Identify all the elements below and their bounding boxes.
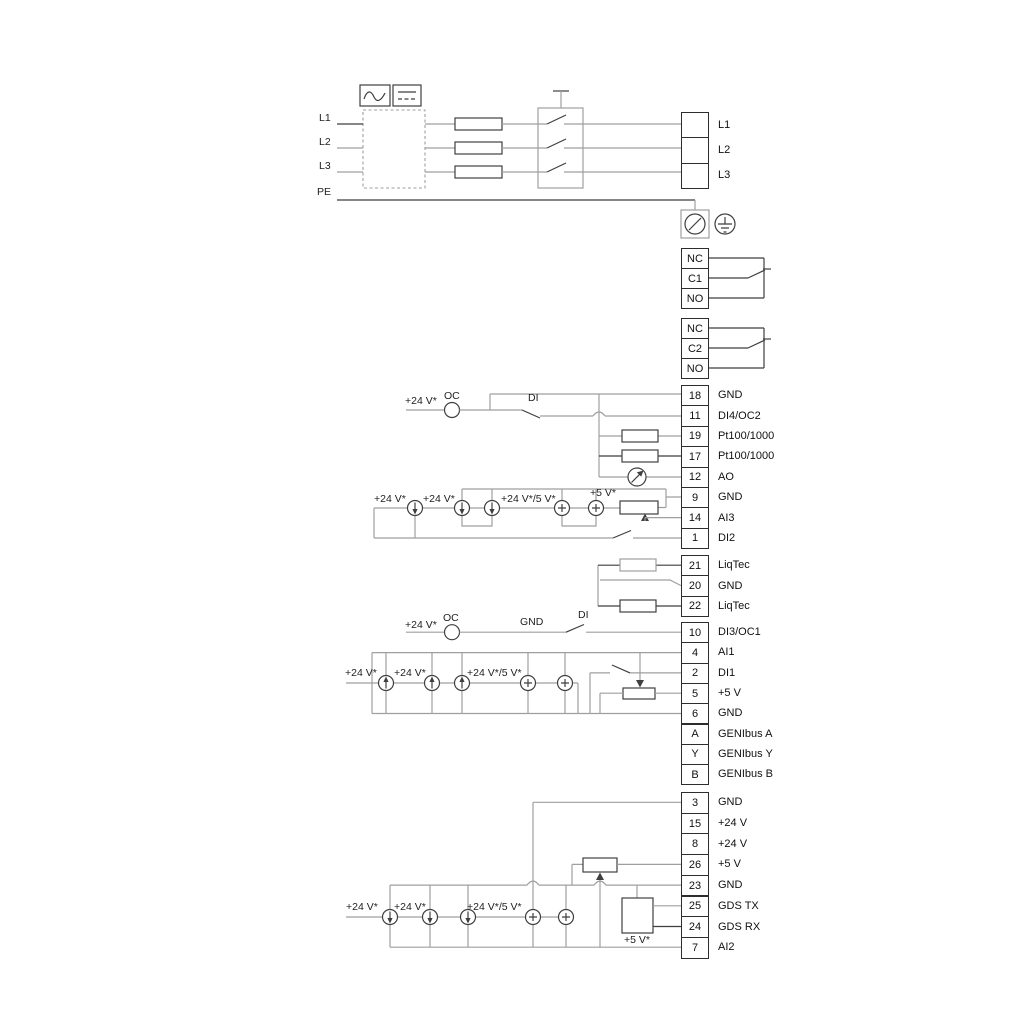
terminal-number: C2	[681, 338, 709, 359]
terminal-number: 8	[681, 833, 709, 855]
di-switch-icon	[612, 665, 630, 673]
wiring-diagram: L1L2L3 NCC1NO NCC2NO 18GND11DI4/OC219Pt1…	[0, 0, 1024, 1024]
terminal-label: +24 V	[718, 817, 747, 829]
terminal-number: 23	[681, 875, 709, 897]
meter-icon	[628, 468, 646, 486]
terminal-row: 26+5 V	[681, 854, 709, 875]
di-switch-icon	[522, 410, 540, 418]
terminal-label: LiqTec	[718, 600, 750, 612]
terminal-number: 17	[681, 446, 709, 467]
terminal-number	[681, 163, 709, 189]
main-switch	[538, 91, 583, 188]
terminal-row: YGENIbus Y	[681, 744, 709, 764]
wire-label: +24 V*	[394, 667, 426, 679]
pt100-resistors	[599, 430, 681, 462]
voltage-source-icon	[555, 501, 570, 516]
terminal-label: GND	[718, 491, 742, 503]
wire-label: +24 V*	[405, 619, 437, 631]
terminal-row: L2	[681, 137, 709, 162]
terminal-row: 4AI1	[681, 642, 709, 662]
wire-label: +24 V*	[345, 667, 377, 679]
terminal-number: A	[681, 724, 709, 745]
relay1-contact-icon	[748, 270, 765, 278]
terminal-label: AO	[718, 471, 734, 483]
terminal-label: GENIbus B	[718, 768, 773, 780]
terminal-number: 20	[681, 575, 709, 596]
relay2-wiring	[709, 328, 771, 368]
wire-label: DI	[578, 609, 589, 621]
terminal-number: 6	[681, 703, 709, 724]
terminal-number: 9	[681, 487, 709, 508]
terminal-label: DI4/OC2	[718, 410, 761, 422]
liqtec-wiring	[598, 559, 681, 612]
terminal-label: AI1	[718, 646, 735, 658]
terminal-row: C1	[681, 268, 709, 288]
terminal-row: NO	[681, 358, 709, 378]
terminal-number: 26	[681, 854, 709, 876]
terminal-row: 20GND	[681, 575, 709, 595]
terminal-row: 9GND	[681, 487, 709, 507]
terminal-row: 24GDS RX	[681, 916, 709, 937]
wire-label: +24 V*	[394, 901, 426, 913]
terminal-number: 2	[681, 663, 709, 684]
potentiometer-icon	[623, 688, 655, 699]
terminal-label: Pt100/1000	[718, 450, 774, 462]
di-switch-icon	[566, 625, 584, 633]
terminal-row: 18GND	[681, 385, 709, 405]
terminal-label: +5 V	[718, 858, 741, 870]
terminal-row: 12AO	[681, 467, 709, 487]
voltage-source-icon	[526, 910, 541, 925]
terminal-row: 14AI3	[681, 507, 709, 527]
terminal-row: 6GND	[681, 703, 709, 723]
terminal-label: GND	[718, 580, 742, 592]
terminal-row: 23GND	[681, 875, 709, 896]
wire-label: +24 V*/5 V*	[501, 493, 556, 505]
current-source-icon	[485, 501, 500, 516]
terminal-number: NO	[681, 288, 709, 309]
terminal-number: 4	[681, 642, 709, 663]
terminal-row: 11DI4/OC2	[681, 405, 709, 425]
di3-oc1-wiring	[406, 625, 681, 640]
terminal-row: NC	[681, 318, 709, 338]
terminal-label: L1	[718, 119, 730, 131]
wire-label: +5 V*	[624, 934, 650, 946]
wire-label: +24 V*	[374, 493, 406, 505]
terminal-label: GND	[718, 796, 742, 808]
terminal-label: AI2	[718, 941, 735, 953]
terminal-row: 2DI1	[681, 663, 709, 683]
wire-label: DI	[528, 392, 539, 404]
terminal-row: 25GDS TX	[681, 896, 709, 917]
ao-wiring	[599, 468, 681, 486]
open-collector-icon	[445, 625, 460, 640]
terminal-row: 21LiqTec	[681, 555, 709, 575]
converter-icons	[360, 85, 421, 106]
terminal-label: GENIbus Y	[718, 748, 773, 760]
terminal-row: NC	[681, 248, 709, 268]
current-source-icon	[455, 501, 470, 516]
terminal-number: 25	[681, 896, 709, 918]
mains-wiring	[337, 118, 538, 178]
terminal-row: AGENIbus A	[681, 724, 709, 744]
terminal-row: L1	[681, 112, 709, 137]
terminal-number: 12	[681, 467, 709, 488]
terminal-label: GDS TX	[718, 900, 759, 912]
terminal-label: GND	[718, 879, 742, 891]
terminal-label: +24 V	[718, 838, 747, 850]
voltage-source-icon	[558, 676, 573, 691]
potentiometer-wiper-icon	[636, 680, 644, 688]
resistor-icon	[622, 450, 658, 462]
wire-label: OC	[443, 612, 459, 624]
relay1-wiring	[709, 258, 771, 298]
wire-label: +24 V*	[423, 493, 455, 505]
fuse-icon	[455, 118, 502, 130]
potentiometer-wiper-icon	[596, 873, 604, 881]
wire-label: L2	[319, 136, 331, 148]
gds-sensor-box	[622, 885, 681, 933]
terminal-label: DI3/OC1	[718, 626, 761, 638]
terminal-number: 22	[681, 596, 709, 617]
di-switch-icon	[613, 531, 631, 539]
terminal-row: 8+24 V	[681, 833, 709, 854]
voltage-source-icon	[521, 676, 536, 691]
terminal-number: 5	[681, 683, 709, 704]
wire-label: +24 V*	[346, 901, 378, 913]
terminal-number: B	[681, 764, 709, 785]
ground-screw-icon	[681, 210, 709, 238]
mains-output-wires	[583, 124, 681, 172]
emc-filter-box	[363, 110, 425, 188]
open-collector-icon	[445, 403, 460, 418]
terminal-number: 14	[681, 507, 709, 528]
wire-label: OC	[444, 390, 460, 402]
terminal-row: BGENIbus B	[681, 764, 709, 784]
terminal-number: C1	[681, 268, 709, 289]
terminal-row: 1DI2	[681, 528, 709, 548]
current-source-icon	[379, 676, 394, 691]
wire-label: GND	[520, 616, 543, 628]
terminal-label: GND	[718, 389, 742, 401]
terminal-number: NC	[681, 248, 709, 269]
terminal-number: 24	[681, 916, 709, 938]
resistor-icon	[622, 430, 658, 442]
wire-label: +24 V*/5 V*	[467, 901, 522, 913]
terminal-row: 3GND	[681, 792, 709, 813]
current-source-icon	[425, 676, 440, 691]
potentiometer-icon	[620, 501, 658, 514]
terminal-number: NC	[681, 318, 709, 339]
terminal-number: 3	[681, 792, 709, 814]
relay2-contact-icon	[748, 340, 765, 348]
terminal-number: 19	[681, 426, 709, 447]
terminal-number: 18	[681, 385, 709, 406]
wire-label: +5 V*	[590, 487, 616, 499]
resistor-icon	[620, 559, 656, 571]
fuse-icon	[455, 142, 502, 154]
pe-wire	[337, 200, 695, 210]
terminal-row: 15+24 V	[681, 813, 709, 834]
voltage-source-icon	[589, 501, 604, 516]
voltage-source-icon	[559, 910, 574, 925]
terminal-row: 7AI2	[681, 937, 709, 958]
terminal-label: DI2	[718, 532, 735, 544]
terminal-number: 10	[681, 622, 709, 643]
terminal-number: Y	[681, 744, 709, 765]
terminal-number: 15	[681, 813, 709, 835]
terminal-row: C2	[681, 338, 709, 358]
terminal-label: LiqTec	[718, 559, 750, 571]
terminal-label: GENIbus A	[718, 728, 772, 740]
terminal-row: 10DI3/OC1	[681, 622, 709, 642]
terminal-number	[681, 137, 709, 163]
terminal-label: Pt100/1000	[718, 430, 774, 442]
wire-label: PE	[317, 186, 331, 198]
wire-label: +24 V*	[405, 395, 437, 407]
terminal-number	[681, 112, 709, 138]
terminal-row: 22LiqTec	[681, 596, 709, 616]
terminal-label: GDS RX	[718, 921, 760, 933]
potentiometer-icon	[583, 858, 617, 872]
wire-label: +24 V*/5 V*	[467, 667, 522, 679]
terminal-number: 21	[681, 555, 709, 576]
schematic-wires	[0, 0, 1024, 1024]
terminal-row: 5+5 V	[681, 683, 709, 703]
terminal-label: GND	[718, 707, 742, 719]
terminal-label: DI1	[718, 667, 735, 679]
wire-label: L1	[319, 112, 331, 124]
terminal-number: NO	[681, 358, 709, 379]
terminal-number: 7	[681, 937, 709, 959]
wire-label: L3	[319, 160, 331, 172]
terminal-row: 19Pt100/1000	[681, 426, 709, 446]
terminal-label: AI3	[718, 512, 735, 524]
terminal-row: 17Pt100/1000	[681, 446, 709, 466]
terminal-row: NO	[681, 288, 709, 308]
terminal-label: L2	[718, 144, 730, 156]
fuse-icon	[455, 166, 502, 178]
earth-symbol-icon	[715, 214, 735, 234]
terminal-number: 1	[681, 528, 709, 549]
terminal-label: +5 V	[718, 687, 741, 699]
terminal-row: L3	[681, 163, 709, 188]
resistor-icon	[620, 600, 656, 612]
ai1-sensor-wiring	[346, 653, 681, 714]
terminal-number: 11	[681, 405, 709, 426]
current-source-icon	[408, 501, 423, 516]
terminal-label: L3	[718, 169, 730, 181]
